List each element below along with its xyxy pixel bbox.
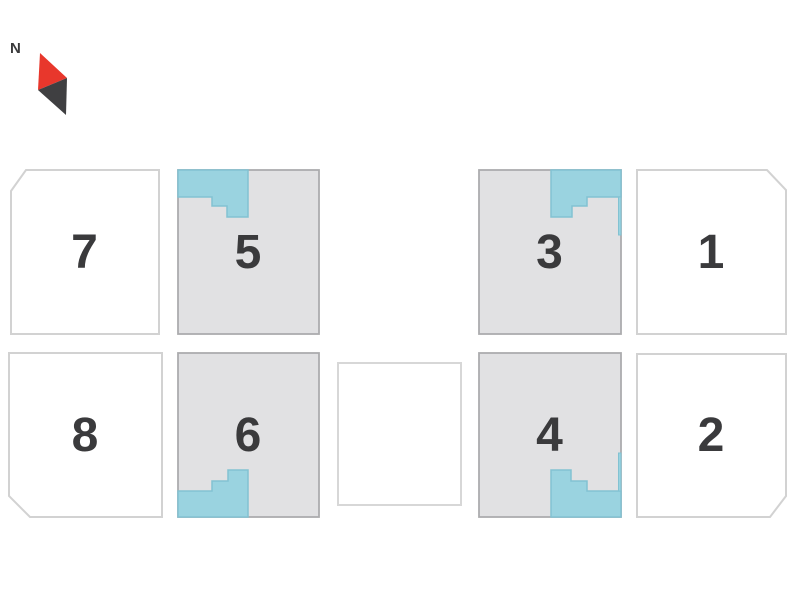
north-arrow-icon <box>34 48 72 120</box>
unit-8[interactable]: 8 <box>8 352 163 518</box>
unit-2-label: 2 <box>636 353 787 518</box>
unit-4-label: 4 <box>478 352 622 518</box>
blank-lot-label <box>337 362 462 506</box>
blank-lot <box>337 362 462 506</box>
unit-6[interactable]: 6 <box>177 352 320 518</box>
unit-7-label: 7 <box>10 169 160 335</box>
unit-1-label: 1 <box>636 169 787 335</box>
unit-1[interactable]: 1 <box>636 169 787 335</box>
unit-6-label: 6 <box>177 352 320 518</box>
compass: N <box>0 0 90 130</box>
unit-2[interactable]: 2 <box>636 353 787 518</box>
unit-5-label: 5 <box>177 169 320 335</box>
unit-8-label: 8 <box>8 352 163 518</box>
compass-north-label: N <box>10 40 21 57</box>
unit-3[interactable]: 3 <box>478 169 622 335</box>
unit-7[interactable]: 7 <box>10 169 160 335</box>
unit-3-label: 3 <box>478 169 622 335</box>
unit-4[interactable]: 4 <box>478 352 622 518</box>
unit-5[interactable]: 5 <box>177 169 320 335</box>
site-plan: N 7 5 3 1 <box>0 0 800 590</box>
